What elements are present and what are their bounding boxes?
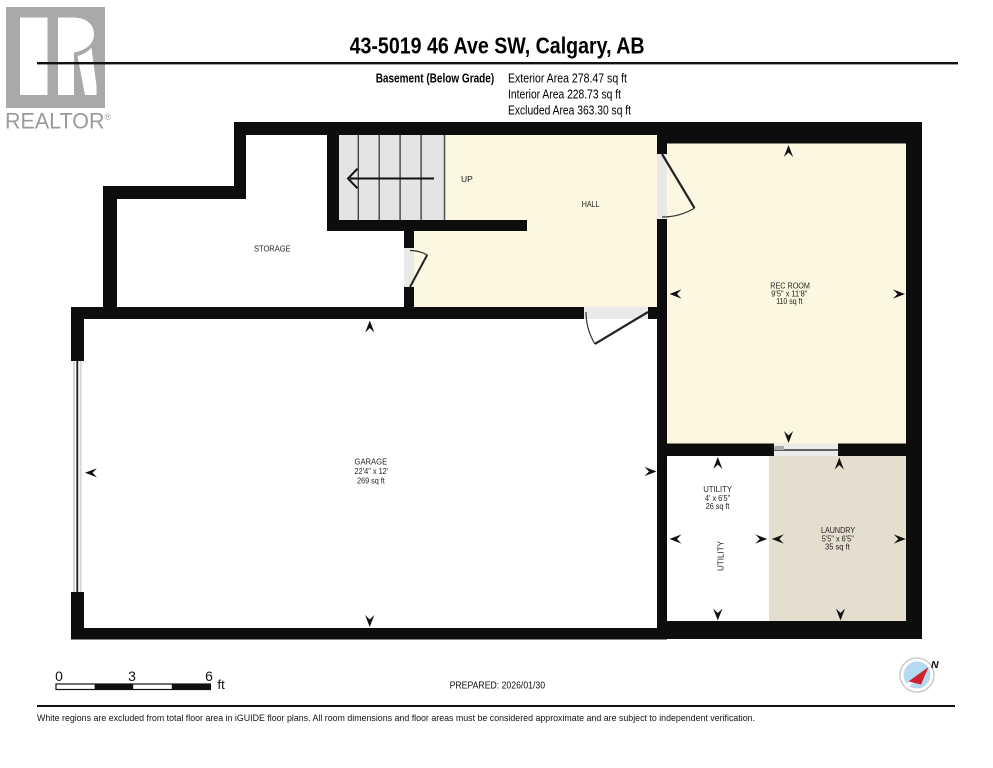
svg-text:0: 0	[55, 668, 63, 684]
svg-text:26 sq ft: 26 sq ft	[706, 501, 730, 511]
svg-text:REALTOR: REALTOR	[5, 109, 105, 134]
svg-text:GARAGE: GARAGE	[355, 457, 388, 467]
svg-text:ft: ft	[218, 677, 226, 692]
svg-text:Excluded Area 363.30 sq ft: Excluded Area 363.30 sq ft	[508, 104, 631, 118]
svg-text:STORAGE: STORAGE	[254, 244, 291, 254]
svg-text:43-5019 46 Ave SW, Calgary, AB: 43-5019 46 Ave SW, Calgary, AB	[350, 33, 645, 59]
svg-text:Exterior Area 278.47 sq ft: Exterior Area 278.47 sq ft	[508, 72, 627, 86]
svg-text:35 sq ft: 35 sq ft	[825, 542, 850, 552]
svg-text:N: N	[931, 659, 939, 671]
svg-text:3: 3	[128, 668, 136, 684]
svg-text:269 sq ft: 269 sq ft	[357, 476, 385, 486]
svg-text:White regions are excluded fro: White regions are excluded from total fl…	[37, 713, 755, 724]
svg-text:22'4" x 12': 22'4" x 12'	[355, 466, 389, 476]
svg-text:UTILITY: UTILITY	[716, 541, 726, 571]
svg-text:Basement (Below Grade): Basement (Below Grade)	[376, 71, 495, 86]
svg-text:UP: UP	[461, 174, 473, 184]
svg-text:Interior Area 228.73 sq ft: Interior Area 228.73 sq ft	[508, 88, 621, 102]
svg-text:HALL: HALL	[582, 199, 600, 209]
svg-text:®: ®	[105, 112, 112, 122]
svg-text:110 sq ft: 110 sq ft	[776, 296, 803, 306]
svg-text:PREPARED: 2026/01/30: PREPARED: 2026/01/30	[450, 680, 546, 692]
svg-text:6: 6	[205, 668, 213, 684]
